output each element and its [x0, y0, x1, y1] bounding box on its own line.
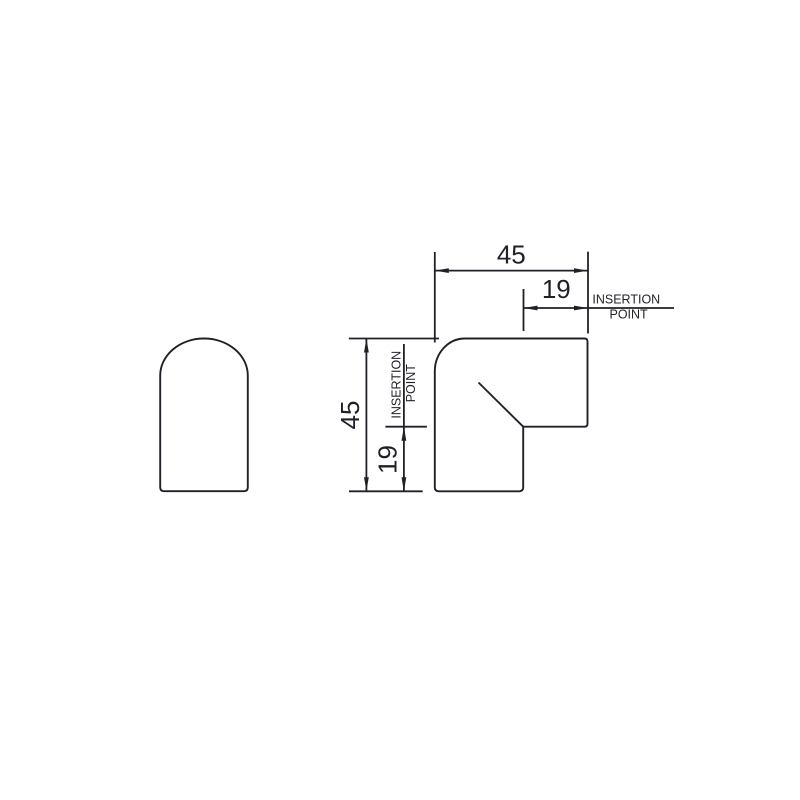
svg-text:INSERTION: INSERTION [389, 351, 403, 419]
svg-text:POINT: POINT [609, 308, 648, 322]
svg-text:45: 45 [497, 239, 526, 269]
svg-text:19: 19 [373, 445, 403, 474]
svg-text:POINT: POINT [404, 364, 418, 403]
svg-text:45: 45 [335, 401, 365, 430]
svg-text:19: 19 [542, 274, 571, 304]
svg-text:INSERTION: INSERTION [592, 293, 660, 307]
